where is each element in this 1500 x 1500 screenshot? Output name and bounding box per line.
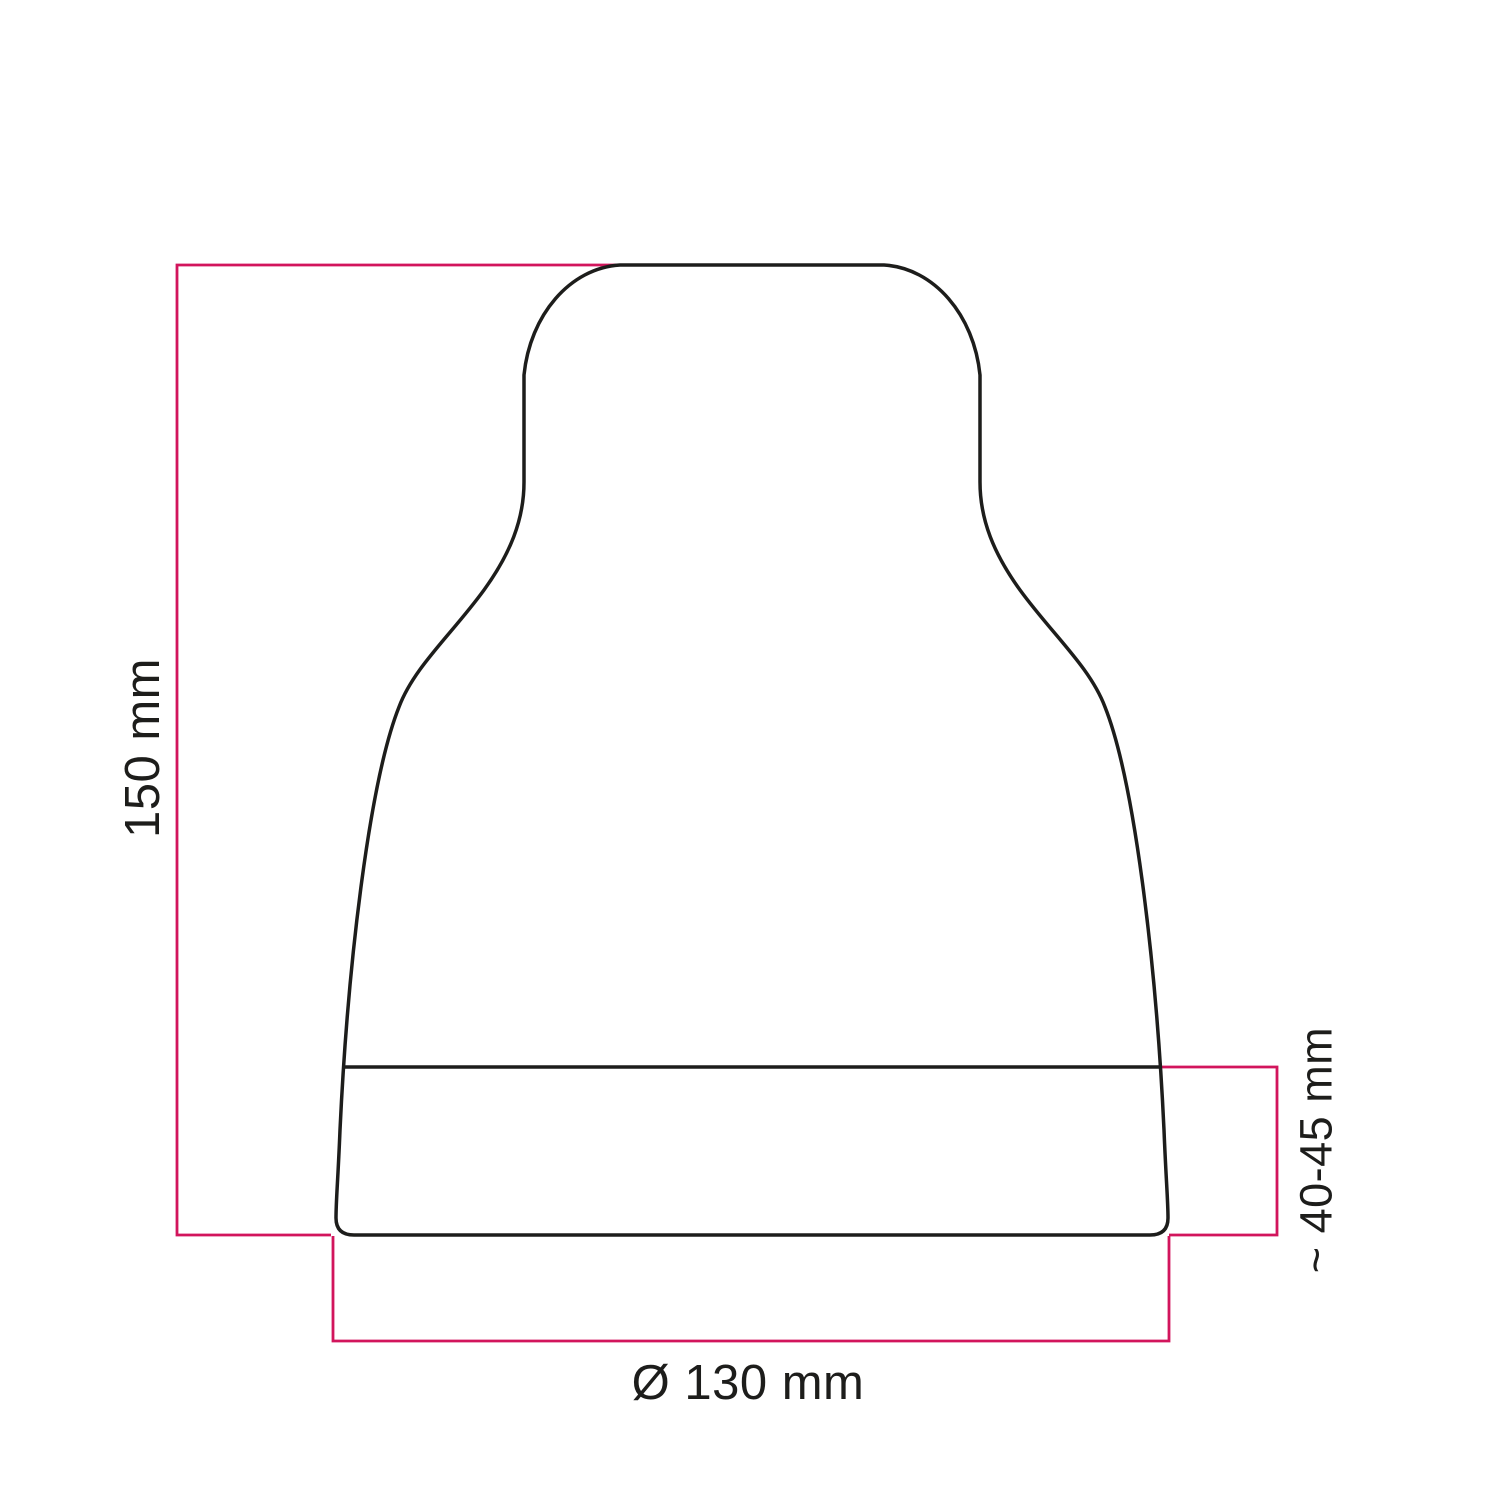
base-height-dimension-label: ~ 40-45 mm: [1291, 1027, 1342, 1273]
height-dimension-line: [177, 265, 620, 1235]
diameter-dimension-label: Ø 130 mm: [632, 1356, 865, 1410]
drawing-canvas: 150 mm ~ 40-45 mm Ø 130 mm: [0, 0, 1500, 1500]
lampshade-outline: [336, 265, 1168, 1235]
lampshade-technical-drawing: 150 mm ~ 40-45 mm Ø 130 mm: [0, 0, 1500, 1500]
height-dimension-label: 150 mm: [116, 658, 170, 838]
diameter-dimension-line: [333, 1236, 1169, 1341]
base-height-dimension-line: [1161, 1067, 1277, 1235]
